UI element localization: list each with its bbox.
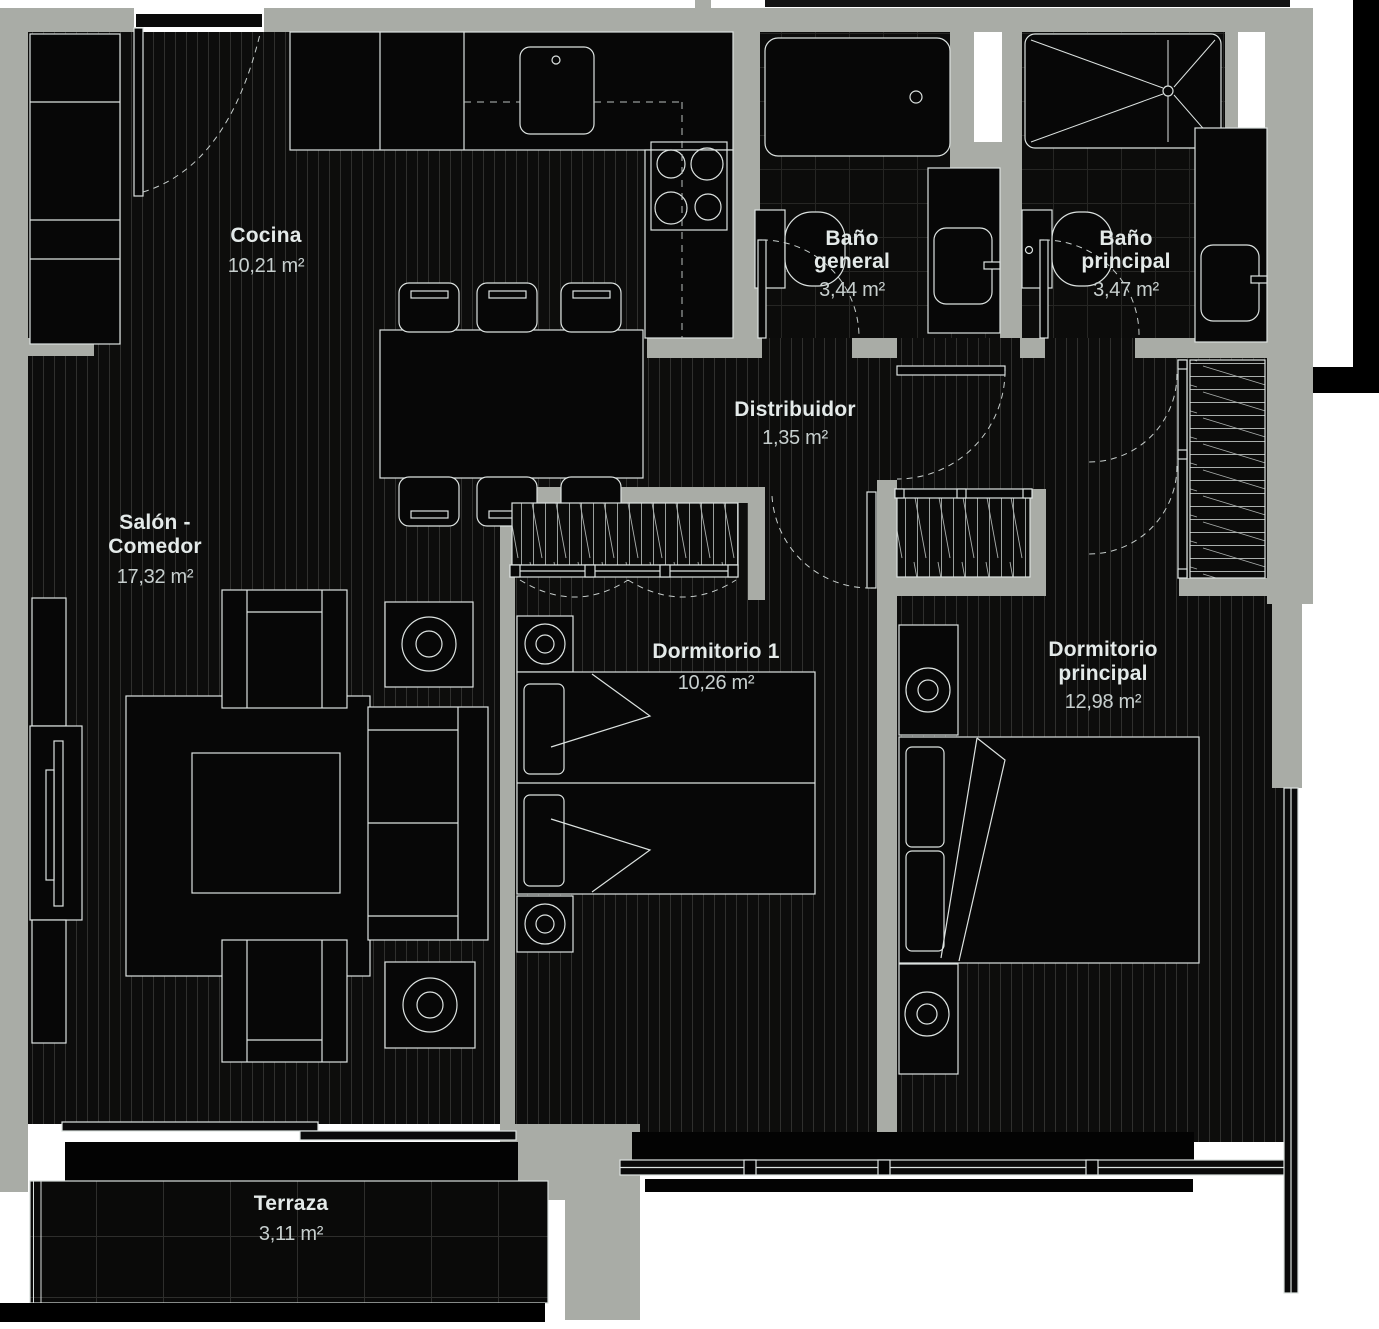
label-bano-principal: principal	[1081, 250, 1170, 273]
window-mullion	[744, 1160, 756, 1175]
terrace-parapet	[0, 1303, 545, 1322]
label-dormitorio-1: Dormitorio 1	[652, 640, 779, 663]
wall-between-baths-lower	[1000, 172, 1022, 338]
door-leaf	[867, 492, 876, 588]
label-dormitorio-principal: Dormitorio	[1048, 638, 1157, 661]
label-dormitorio-principal: principal	[1058, 662, 1147, 685]
door-leaf	[1040, 240, 1048, 338]
double-bed	[899, 737, 1199, 963]
wall-kitchen-bath	[733, 30, 760, 338]
nightstand	[517, 616, 573, 672]
neighbor-floor-strip	[765, 0, 1290, 7]
wall-dorm1-closet-right	[748, 487, 765, 600]
chair	[561, 283, 621, 332]
label-cocina-area: 10,21 m²	[228, 255, 305, 277]
neighbor-wall-band	[1313, 0, 1379, 393]
kitchen-cabinet-column	[30, 34, 120, 344]
nightstand	[899, 625, 958, 735]
nightstand	[899, 964, 958, 1074]
vanity-sink	[928, 168, 1000, 333]
neighbor-wall-horizontal	[1313, 367, 1379, 393]
floor-door-band	[733, 338, 1140, 360]
sofa	[368, 707, 488, 940]
label-bano-general-area: 3,44 m²	[819, 279, 885, 301]
label-dormitorio-1-area: 10,26 m²	[678, 672, 755, 694]
window-outer-strip	[645, 1179, 1193, 1192]
bathtub	[765, 38, 950, 156]
label-bano-principal-area: 3,47 m²	[1093, 279, 1159, 301]
chair	[399, 283, 459, 332]
wall-dorm1-dormppal	[877, 480, 897, 1142]
floor-plan-drawing: Cocina 10,21 m² Baño general 3,44 m² Bañ…	[0, 0, 1379, 1329]
wall-right	[1267, 142, 1313, 604]
window-sill	[632, 1132, 1194, 1160]
sliding-door-leaf	[300, 1131, 516, 1140]
floor-plan: Cocina 10,21 m² Baño general 3,44 m² Bañ…	[0, 0, 1379, 1329]
window-mullion	[878, 1160, 890, 1175]
sliding-door-leaf	[62, 1122, 318, 1131]
armchair	[222, 940, 347, 1062]
tv-bracket	[46, 770, 54, 880]
kitchen-counter-right	[645, 142, 733, 338]
label-terraza-area: 3,11 m²	[259, 1223, 324, 1245]
chair	[477, 283, 537, 332]
nightstand	[517, 896, 573, 952]
door-leaf-dorm-principal	[897, 366, 1005, 375]
window-between-baths	[974, 32, 1002, 142]
kitchen-sink	[520, 47, 594, 134]
door-leaf	[758, 240, 766, 338]
side-table	[385, 602, 473, 687]
wall-hall-2	[852, 338, 897, 358]
label-dormitorio-principal-area: 12,98 m²	[1065, 691, 1142, 713]
wall-hall-3	[1020, 338, 1045, 358]
terrace-threshold	[65, 1142, 518, 1181]
wall-salon-dorm1	[500, 487, 515, 1124]
neighbor-wall-vertical	[1353, 0, 1379, 367]
terraza-zone	[0, 1122, 548, 1322]
kitchen-counter	[290, 32, 733, 150]
wall-left	[0, 8, 28, 1192]
door-leaf	[134, 28, 143, 196]
label-cocina: Cocina	[230, 224, 301, 247]
label-salon-area: 17,32 m²	[117, 566, 194, 588]
wall-tall-closet-bottom	[1179, 578, 1268, 596]
wall-closetA-bottom	[897, 577, 1046, 596]
armchair	[222, 590, 347, 708]
wall-right-lower	[1272, 604, 1302, 788]
tv	[54, 741, 63, 906]
window-mullion	[1086, 1160, 1098, 1175]
label-terraza: Terraza	[254, 1192, 329, 1215]
vanity-sink	[1195, 128, 1267, 342]
shower-tray	[1025, 34, 1221, 148]
label-salon: Salón -	[119, 511, 190, 534]
label-salon: Comedor	[108, 535, 202, 558]
coffee-table	[192, 753, 340, 893]
double-bed	[517, 672, 815, 894]
label-distribuidor-area: 1,35 m²	[762, 427, 828, 449]
hall-closet	[895, 489, 1032, 577]
window-right-of-shower	[1238, 32, 1265, 142]
side-table	[385, 962, 475, 1048]
wall-dorm1-closet-top	[500, 487, 765, 503]
label-bano-principal: Baño	[1099, 227, 1152, 250]
label-bano-general: Baño	[825, 227, 878, 250]
label-bano-general: general	[814, 250, 890, 273]
label-distribuidor: Distribuidor	[734, 398, 855, 421]
wall-terrace-block	[565, 1200, 640, 1320]
wall-top-stub	[695, 0, 711, 9]
dining-table	[380, 330, 643, 478]
chair	[399, 477, 459, 526]
entry-door-header	[136, 14, 262, 27]
wall-hall-1	[647, 338, 762, 358]
